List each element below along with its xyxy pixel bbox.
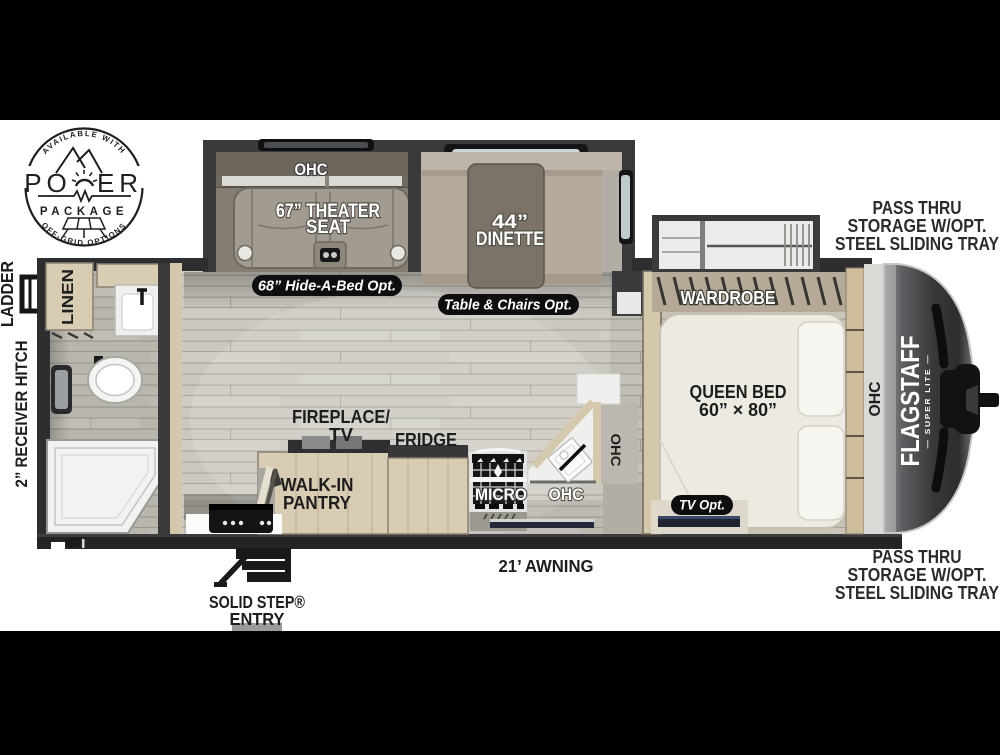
svg-text:SEAT: SEAT [306, 217, 350, 238]
svg-text:WALK-IN: WALK-IN [281, 475, 354, 495]
svg-text:STORAGE W/OPT.: STORAGE W/OPT. [848, 565, 987, 585]
svg-text:MICRO: MICRO [475, 485, 527, 504]
svg-text:QUEEN BED: QUEEN BED [690, 382, 787, 402]
svg-text:STEEL SLIDING TRAY: STEEL SLIDING TRAY [835, 583, 999, 603]
svg-text:PACKAGE: PACKAGE [40, 206, 128, 218]
svg-text:ENTRY: ENTRY [230, 609, 285, 629]
svg-text:FRIDGE: FRIDGE [395, 430, 457, 450]
svg-text:WARDROBE: WARDROBE [681, 288, 776, 308]
svg-text:STEEL SLIDING TRAY: STEEL SLIDING TRAY [835, 234, 999, 254]
svg-text:OHC: OHC [608, 434, 623, 467]
svg-text:68” Hide-A-Bed Opt.: 68” Hide-A-Bed Opt. [258, 278, 396, 295]
svg-text:FIREPLACE/: FIREPLACE/ [292, 407, 390, 427]
svg-text:OHC: OHC [295, 160, 328, 179]
svg-text:ER: ER [97, 168, 143, 198]
svg-text:PASS THRU: PASS THRU [873, 547, 962, 567]
svg-text:TV: TV [329, 425, 353, 445]
svg-text:OHC: OHC [549, 485, 584, 504]
svg-text:DINETTE: DINETTE [476, 229, 544, 250]
svg-text:FLAGSTAFF: FLAGSTAFF [895, 336, 925, 467]
svg-text:STORAGE W/OPT.: STORAGE W/OPT. [848, 216, 987, 236]
svg-text:TV Opt.: TV Opt. [679, 497, 725, 513]
svg-text:Table & Chairs Opt.: Table & Chairs Opt. [444, 297, 572, 314]
svg-text:PANTRY: PANTRY [283, 493, 351, 513]
svg-text:LINEN: LINEN [60, 269, 77, 325]
svg-text:PASS THRU: PASS THRU [873, 198, 962, 218]
svg-text:21’ AWNING: 21’ AWNING [499, 556, 594, 576]
svg-text:OHC: OHC [867, 381, 884, 416]
svg-text:60” × 80”: 60” × 80” [699, 400, 777, 420]
svg-text:— SUPER LITE —: — SUPER LITE — [923, 354, 932, 449]
svg-text:PO: PO [24, 168, 72, 198]
svg-text:LADDER: LADDER [0, 261, 17, 327]
svg-text:2” RECEIVER HITCH: 2” RECEIVER HITCH [13, 341, 31, 488]
